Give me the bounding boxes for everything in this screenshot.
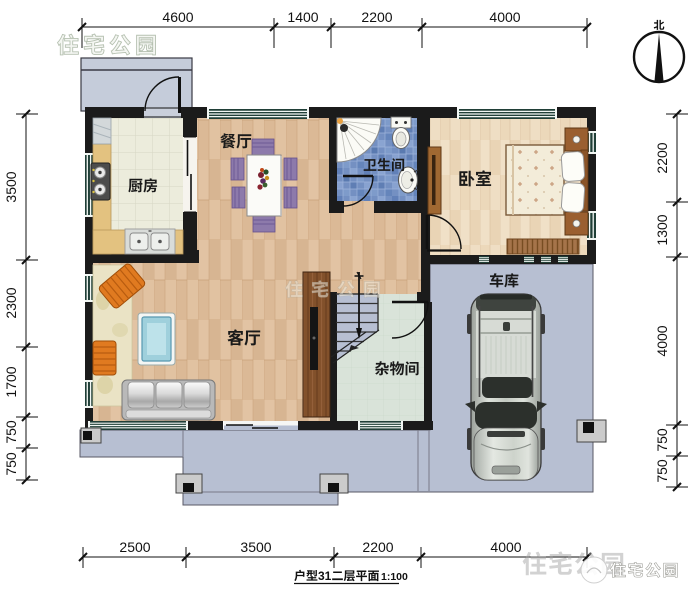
- svg-text:1:100: 1:100: [381, 571, 408, 583]
- svg-text:4000: 4000: [490, 539, 521, 555]
- svg-text:31: 31: [318, 569, 332, 583]
- svg-text:4600: 4600: [162, 9, 193, 25]
- svg-text:2300: 2300: [3, 287, 19, 318]
- svg-text:1700: 1700: [3, 366, 19, 397]
- svg-text:750: 750: [654, 428, 670, 452]
- svg-text:4000: 4000: [654, 325, 670, 356]
- svg-text:3500: 3500: [3, 171, 19, 202]
- svg-text:2200: 2200: [654, 142, 670, 173]
- svg-text:750: 750: [654, 459, 670, 483]
- svg-text:750: 750: [3, 452, 19, 476]
- svg-text:750: 750: [3, 420, 19, 444]
- svg-text:1300: 1300: [654, 214, 670, 245]
- svg-text:1400: 1400: [287, 9, 318, 25]
- svg-text:4000: 4000: [489, 9, 520, 25]
- svg-text:3500: 3500: [240, 539, 271, 555]
- svg-text:2500: 2500: [119, 539, 150, 555]
- svg-text:2200: 2200: [362, 539, 393, 555]
- svg-text:2200: 2200: [361, 9, 392, 25]
